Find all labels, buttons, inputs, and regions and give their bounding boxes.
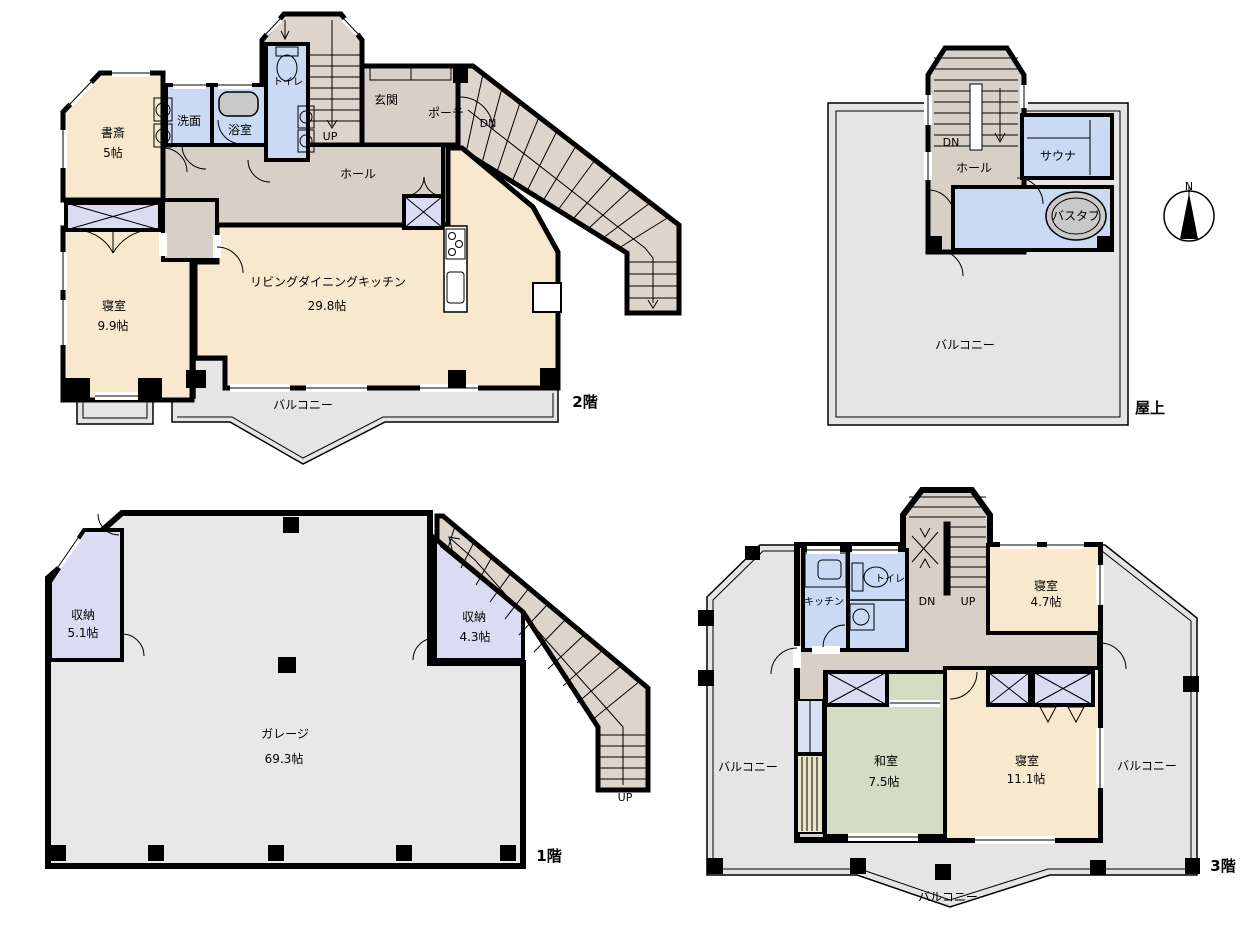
closet-hall-2f xyxy=(404,196,443,228)
label-garage-size: 69.3帖 xyxy=(265,751,304,766)
label-sauna: サウナ xyxy=(1040,149,1076,163)
label-washitsu-size: 7.5帖 xyxy=(868,774,899,789)
window-bay-2f xyxy=(533,283,561,312)
hall-corridor-2f xyxy=(163,200,217,260)
label-washroom: 洗面 xyxy=(177,114,201,128)
label-dn-3f: DN xyxy=(919,595,936,608)
label-porch: ポーチ xyxy=(428,106,464,120)
compass-north-label: N xyxy=(1185,180,1193,193)
label-balcony-2f: バルコニー xyxy=(273,398,333,412)
room-toilet-2f xyxy=(266,44,308,160)
label-hall-roof: ホール xyxy=(956,161,992,175)
floor-label-roof: 屋上 xyxy=(1135,399,1165,417)
label-ldk: リビングダイニングキッチン xyxy=(250,274,406,289)
bedroom-balcony-2f xyxy=(77,400,153,424)
label-balcony-3f-right: バルコニー xyxy=(1117,759,1177,773)
label-bath: 浴室 xyxy=(228,122,252,137)
label-hall-2f: ホール xyxy=(340,167,376,181)
closet-bedroom-large-1 xyxy=(988,672,1030,705)
label-bedroom-small: 寝室 xyxy=(1034,578,1058,593)
label-entrance: 玄関 xyxy=(374,92,398,107)
room-storage1 xyxy=(50,530,122,660)
closet-washitsu xyxy=(826,672,887,705)
label-balcony-roof: バルコニー xyxy=(935,338,995,352)
label-bathtub: バスタブ xyxy=(1052,208,1100,223)
label-bedroom-large-size: 11.1帖 xyxy=(1007,771,1046,786)
label-bedroom-small-size: 4.7帖 xyxy=(1030,594,1061,609)
floor-plan-sheet: 書斎 5帖 洗面 浴室 トイレ UP 玄関 ポーチ DN ホール リビングダイニ… xyxy=(0,0,1249,940)
label-garage: ガレージ xyxy=(261,727,309,741)
tatami-strip xyxy=(797,755,823,833)
label-up-1f: UP xyxy=(618,791,633,804)
floor-label-1f: 1階 xyxy=(536,847,561,865)
label-bedroom-2f: 寝室 xyxy=(102,298,126,313)
label-balcony-3f-bottom: バルコニー xyxy=(918,890,978,904)
label-storage2-size: 4.3帖 xyxy=(459,629,490,644)
compass-icon: N xyxy=(1164,180,1214,241)
label-washitsu: 和室 xyxy=(874,753,898,768)
label-dn-2f: DN xyxy=(480,117,497,130)
label-bedroom-2f-size: 9.9帖 xyxy=(97,318,128,333)
label-kitchen-3f: キッチン xyxy=(804,596,844,608)
label-up-2f: UP xyxy=(323,130,338,143)
roof-plan: DN ホール サウナ バスタブ バルコニー 屋上 xyxy=(828,48,1165,425)
label-balcony-3f-left: バルコニー xyxy=(718,760,778,774)
floor-2-plan: 書斎 5帖 洗面 浴室 トイレ UP 玄関 ポーチ DN ホール リビングダイニ… xyxy=(59,14,679,464)
floor-3-plan: キッチン トイレ DN UP 寝室 4.7帖 和室 7.5帖 寝室 11.1帖 … xyxy=(698,490,1236,907)
label-up-3f: UP xyxy=(961,595,976,608)
label-storage1: 収納 xyxy=(71,608,95,622)
label-bedroom-large: 寝室 xyxy=(1015,753,1039,768)
label-ldk-size: 29.8帖 xyxy=(308,298,347,313)
closet-bedroom-2f xyxy=(66,203,160,230)
floor-1-plan: 収納 5.1帖 収納 4.3帖 ガレージ 69.3帖 UP 1階 xyxy=(48,513,648,866)
floor-label-2f: 2階 xyxy=(572,393,597,411)
label-storage2: 収納 xyxy=(462,610,486,624)
bathtub-2f xyxy=(219,92,258,116)
label-toilet-2f: トイレ xyxy=(273,77,303,88)
room-sauna xyxy=(1022,115,1112,178)
label-study: 書斎 xyxy=(101,125,125,140)
kitchen-counter-2f xyxy=(444,226,467,312)
label-study-size: 5帖 xyxy=(103,145,123,160)
floor-label-3f: 3階 xyxy=(1210,857,1235,875)
label-storage1-size: 5.1帖 xyxy=(67,625,98,640)
label-dn-roof: DN xyxy=(943,136,960,149)
label-toilet-3f: トイレ xyxy=(875,574,905,585)
floor-plan-drawing: 書斎 5帖 洗面 浴室 トイレ UP 玄関 ポーチ DN ホール リビングダイニ… xyxy=(0,0,1249,940)
